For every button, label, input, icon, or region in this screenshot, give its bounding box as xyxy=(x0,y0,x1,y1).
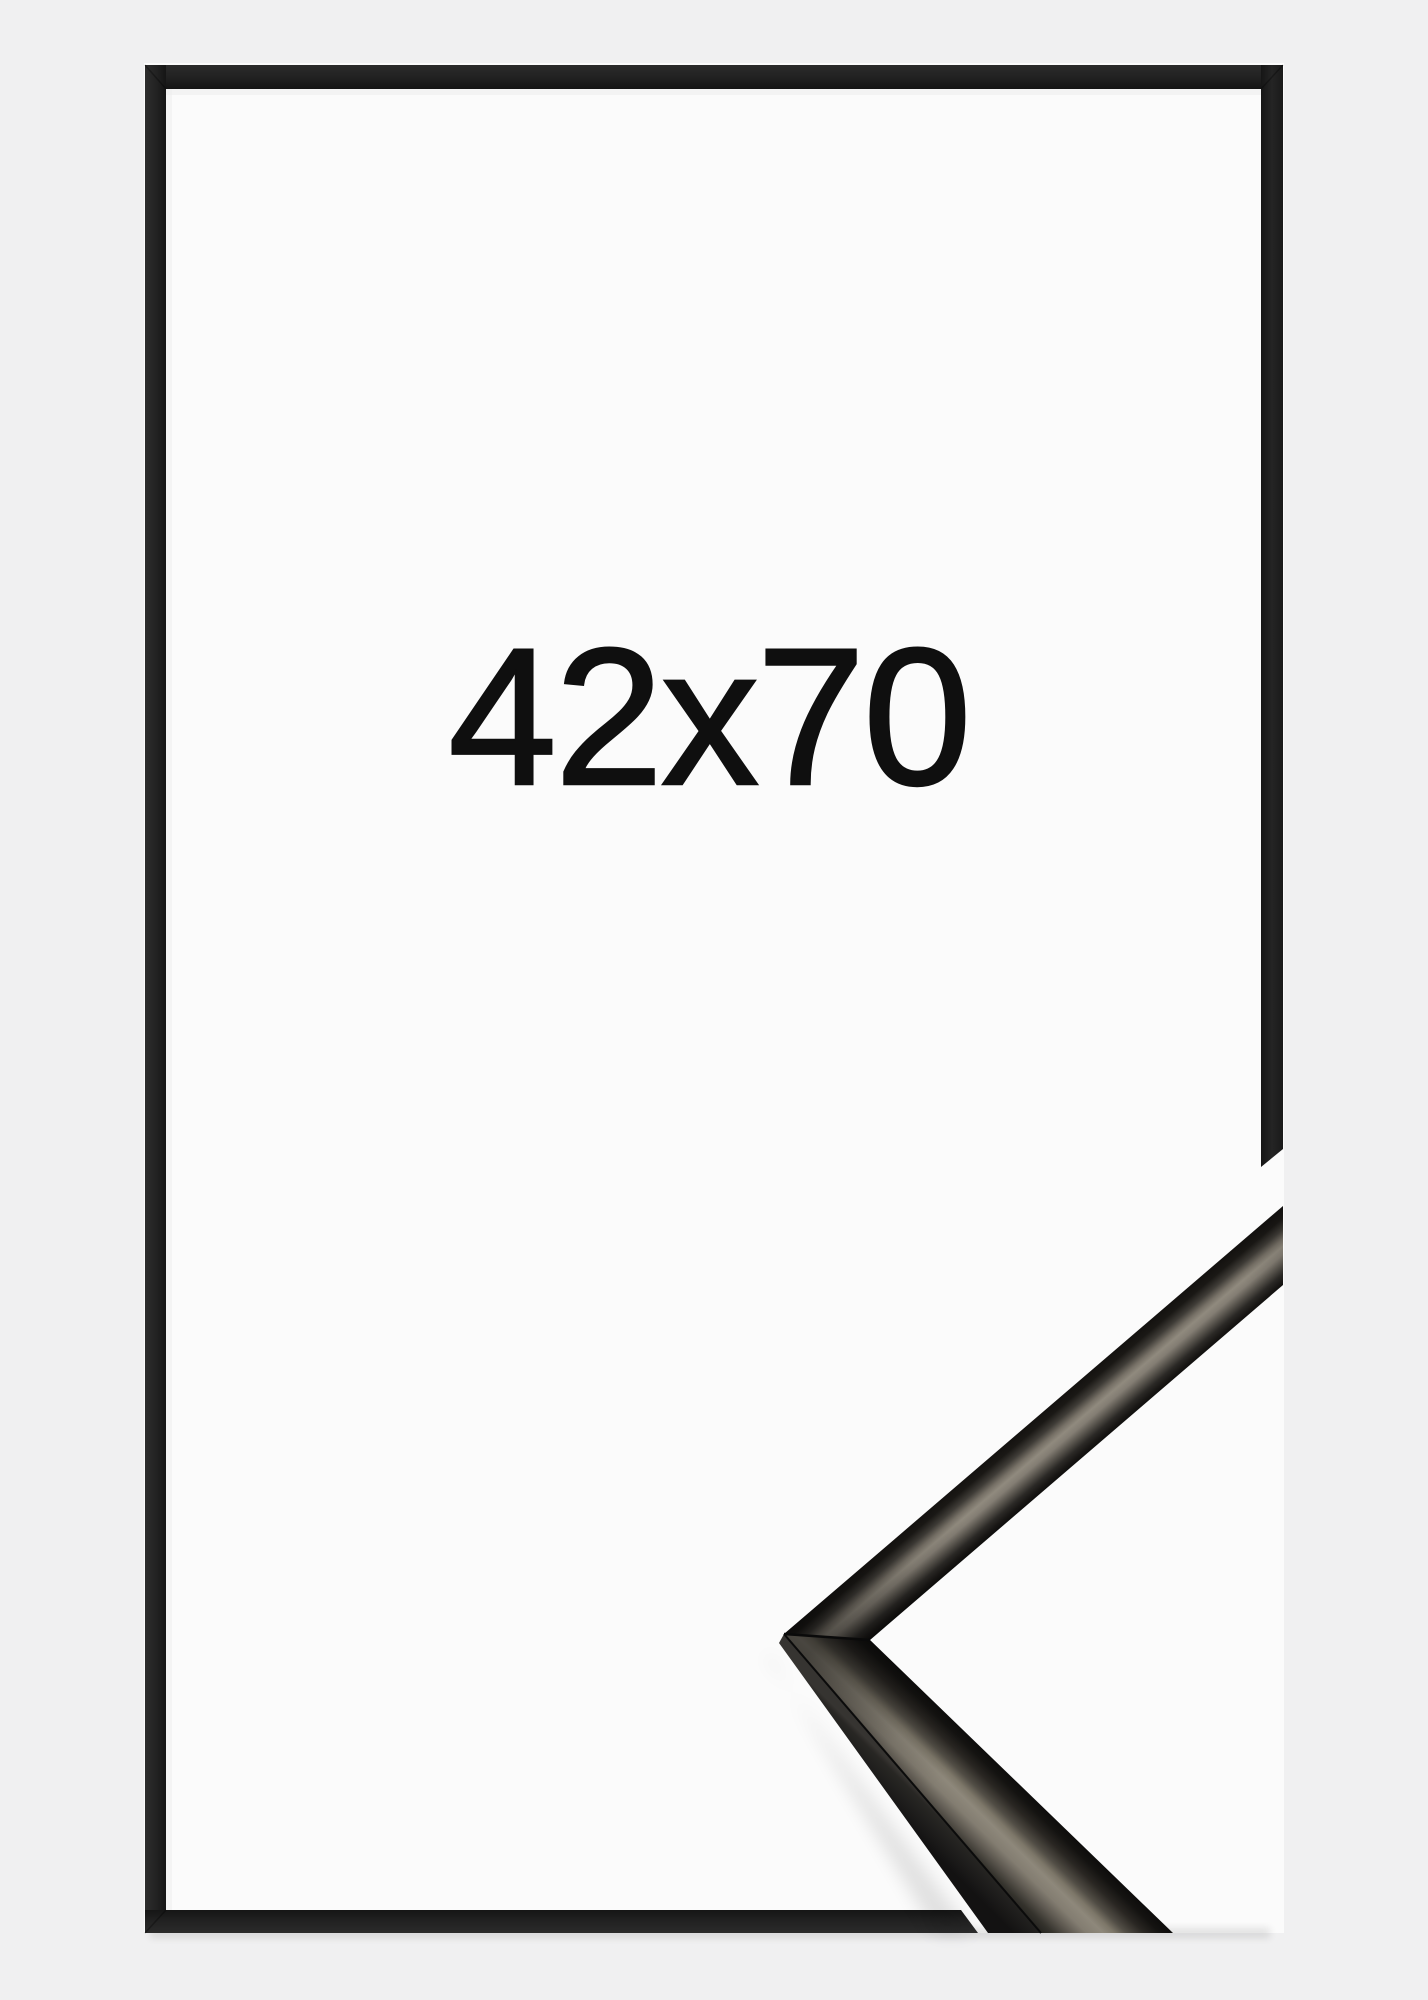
svg-text:42x70: 42x70 xyxy=(448,608,969,826)
